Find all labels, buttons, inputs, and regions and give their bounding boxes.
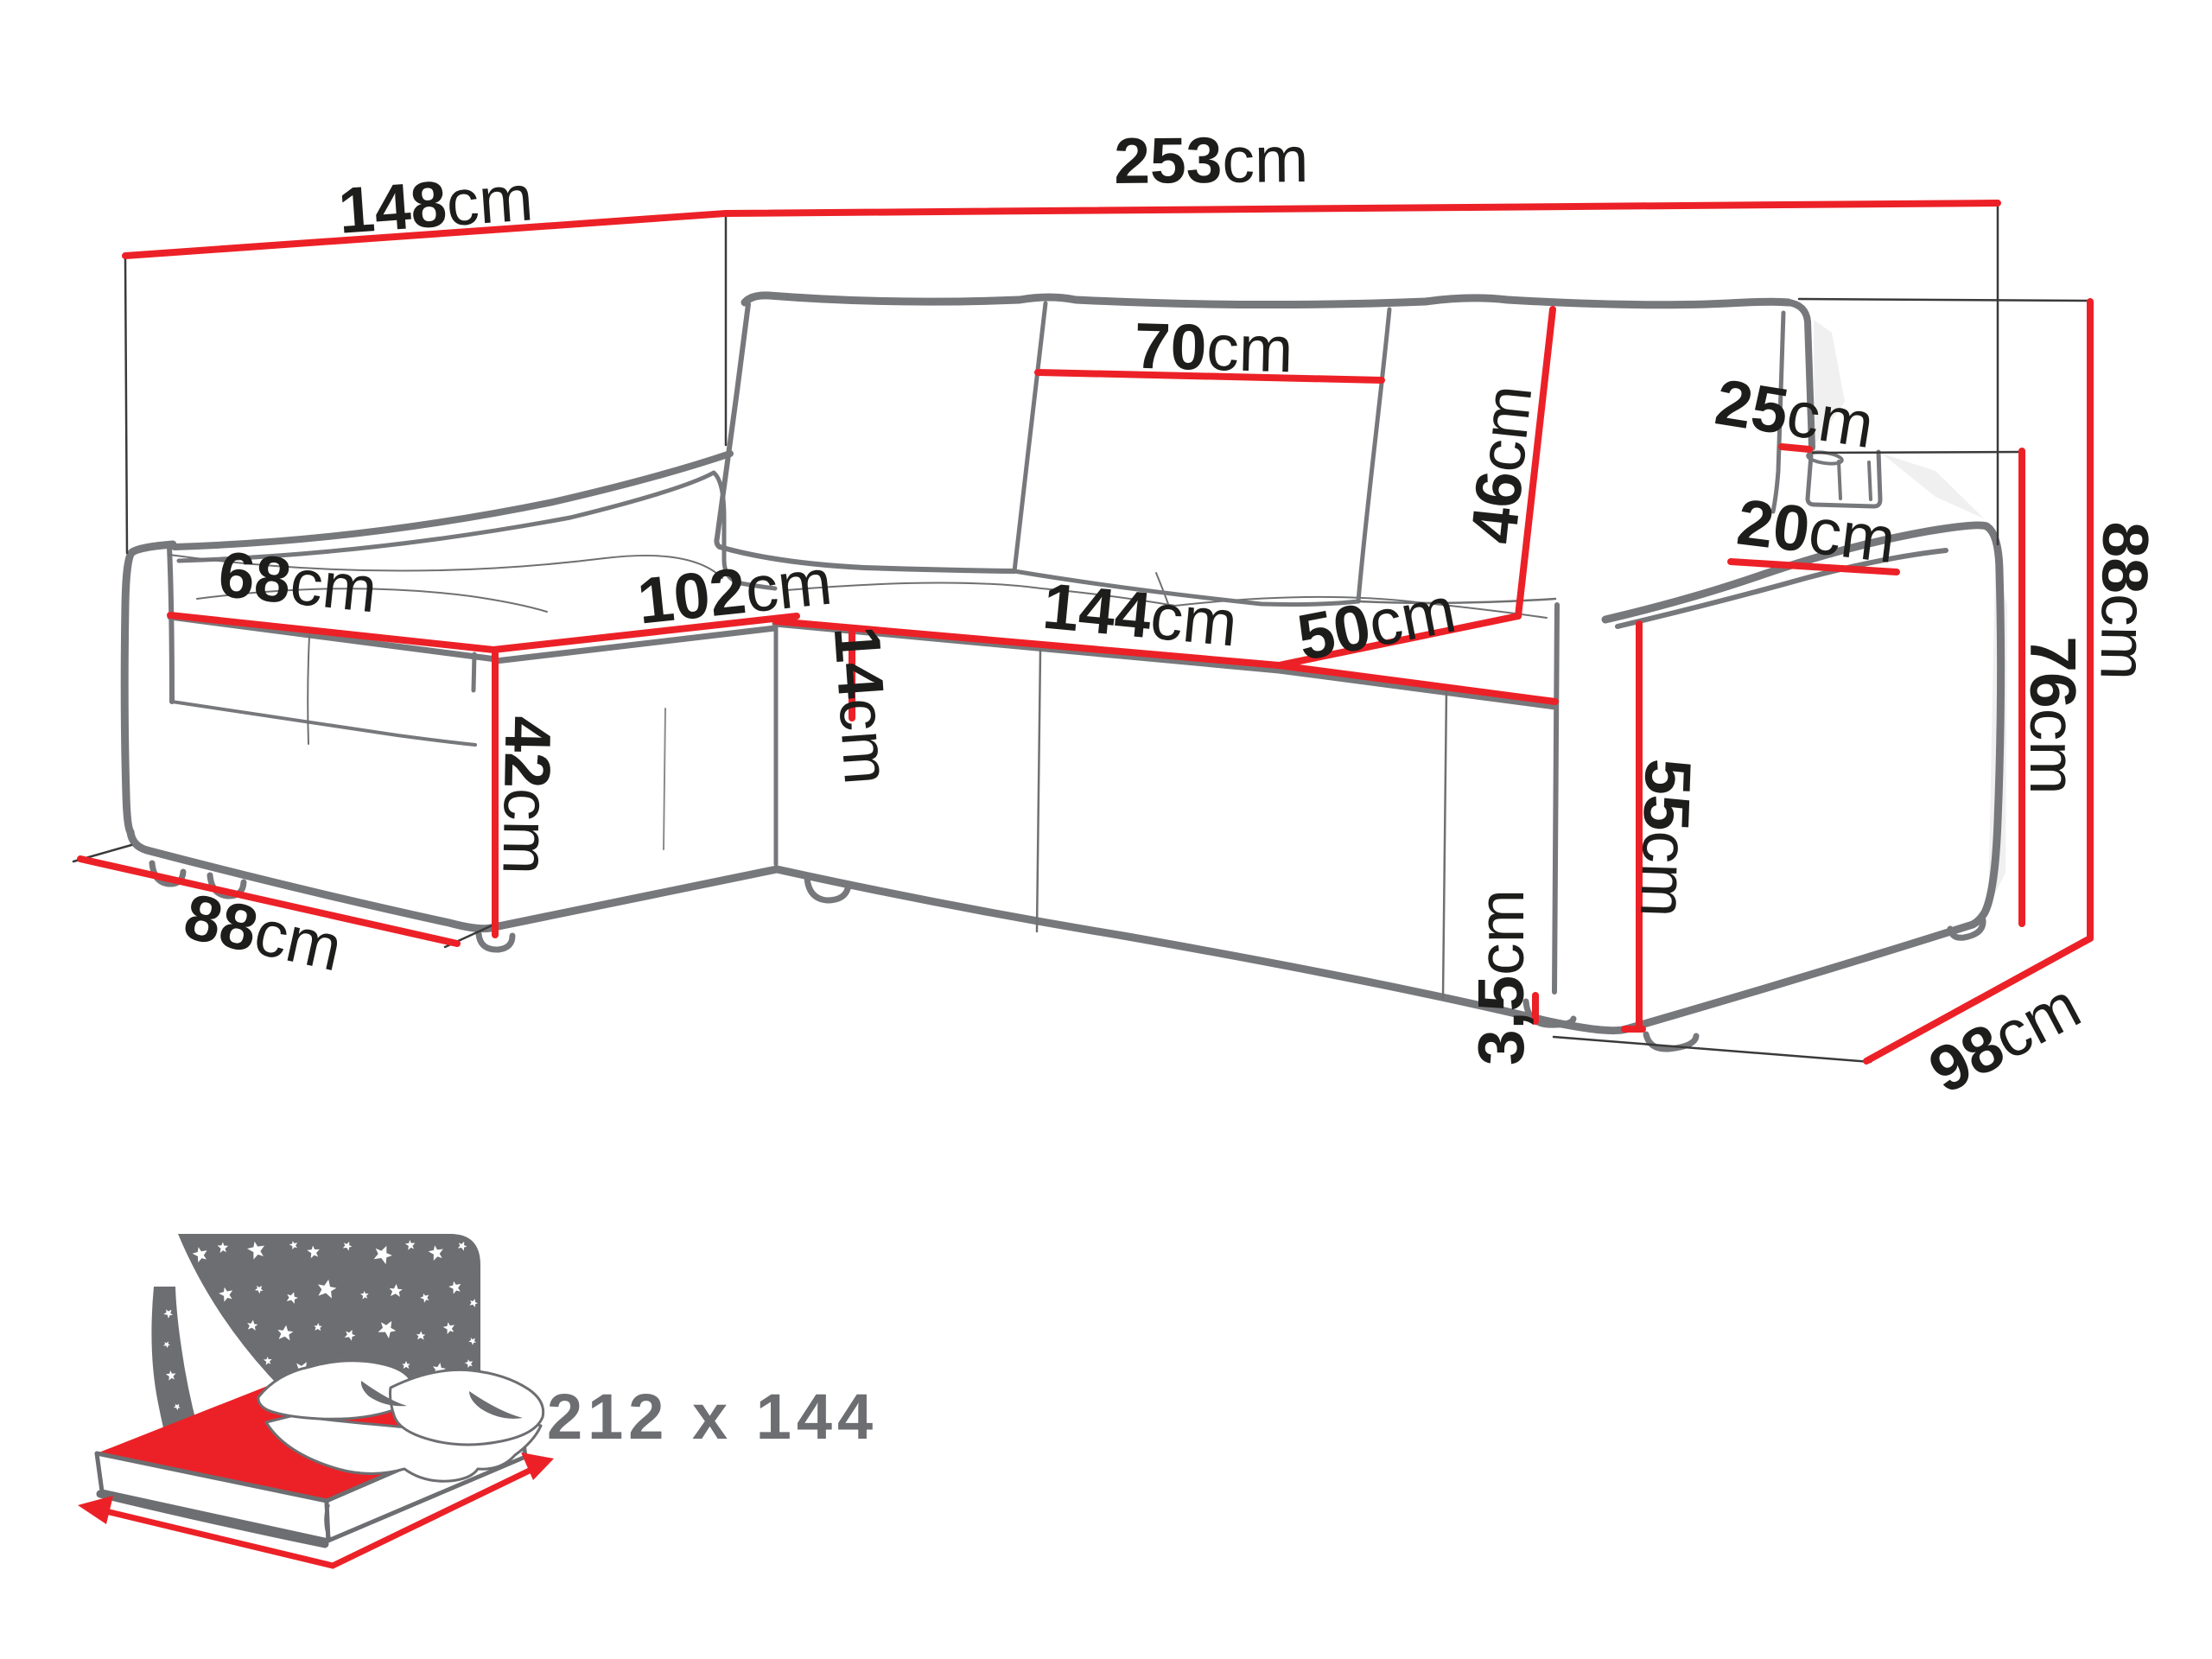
svg-text:253cm: 253cm (1114, 123, 1309, 197)
svg-text:55cm: 55cm (1627, 758, 1705, 918)
svg-text:70cm: 70cm (1134, 309, 1294, 386)
svg-text:148cm: 148cm (336, 161, 535, 246)
svg-text:76cm: 76cm (2017, 636, 2089, 794)
svg-text:14cm: 14cm (821, 624, 905, 787)
svg-text:3,5cm: 3,5cm (1465, 889, 1537, 1065)
svg-text:212 x 144: 212 x 144 (547, 1381, 878, 1452)
svg-text:42cm: 42cm (489, 715, 564, 875)
svg-text:88cm: 88cm (2087, 521, 2162, 681)
